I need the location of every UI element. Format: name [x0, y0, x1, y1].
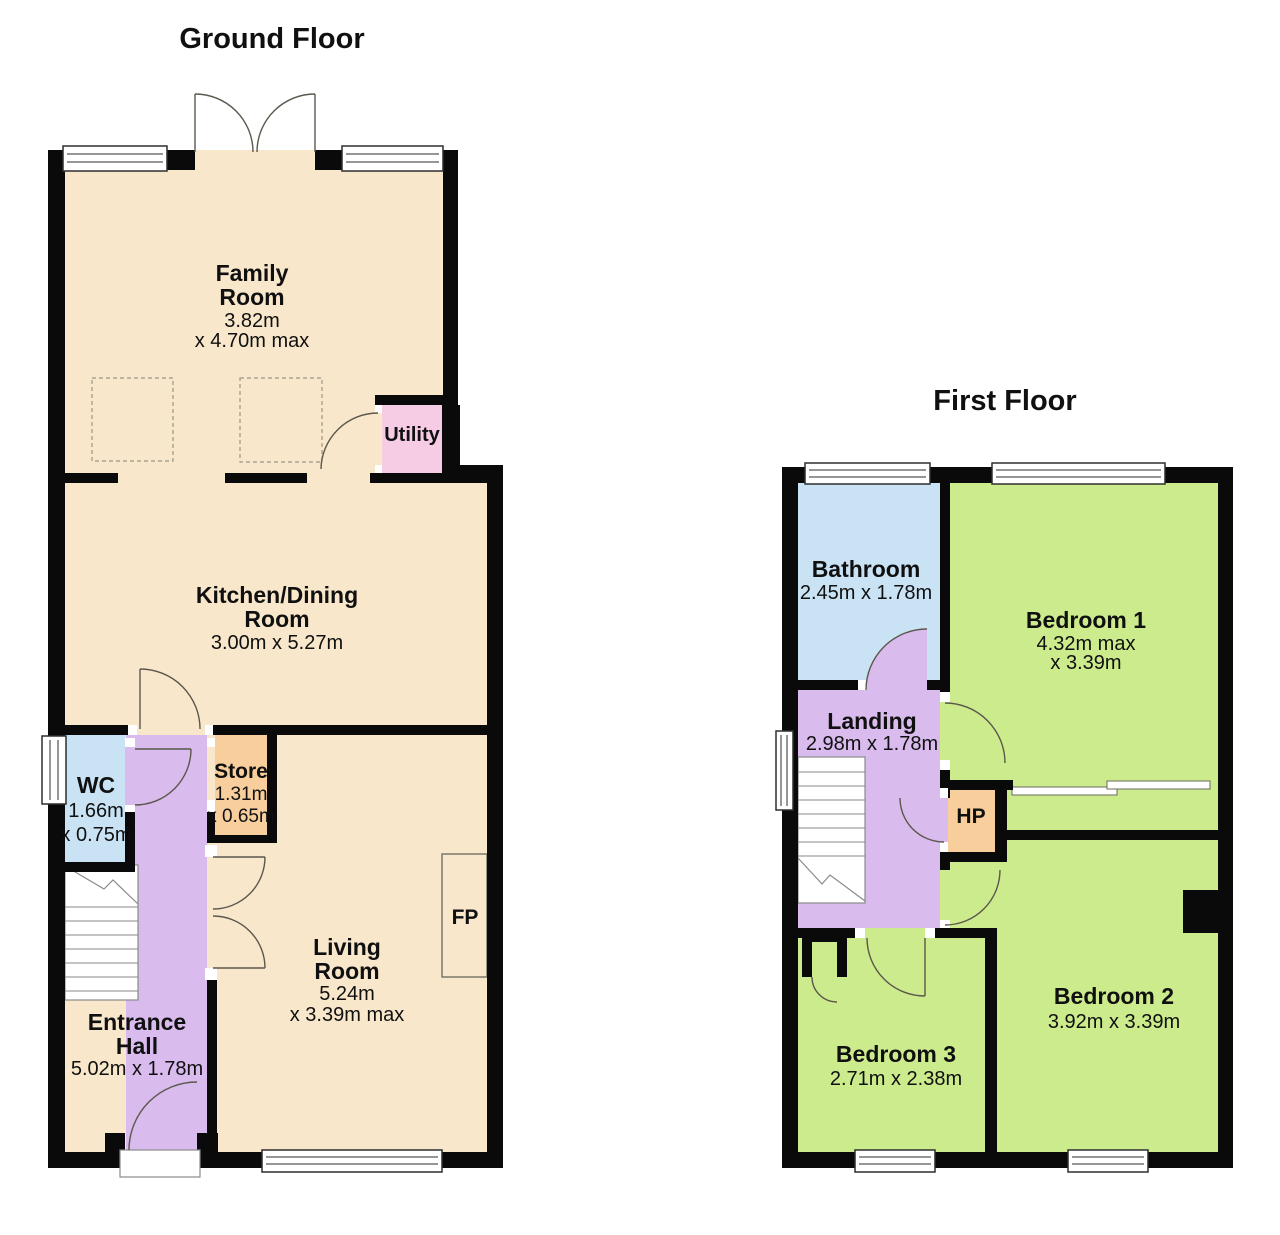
wall-segment: [798, 680, 858, 690]
kitchen-dims: 3.00m x 5.27m: [211, 632, 343, 654]
living-room-label: Room: [314, 958, 379, 984]
window: [776, 731, 793, 810]
landing-dims: 2.98m x 1.78m: [806, 733, 938, 755]
living-room-dims: 5.24m: [319, 983, 375, 1005]
door-jamb: [940, 788, 948, 798]
utility-label: Utility: [384, 424, 440, 446]
chimney-breast: [1183, 890, 1218, 933]
door-jamb: [940, 692, 950, 702]
staircase: [798, 757, 865, 903]
wardrobe-sliding-door: [1107, 781, 1210, 789]
bedroom3-dims: 2.71m x 2.38m: [830, 1068, 962, 1090]
window: [805, 463, 930, 484]
window: [1068, 1150, 1148, 1172]
bedroom1-label: Bedroom 1: [1026, 607, 1146, 633]
wall-segment: [65, 862, 135, 872]
store-dims: x 0.65m: [207, 806, 275, 827]
door-jamb: [125, 738, 135, 747]
bedroom2-label: Bedroom 2: [1054, 983, 1174, 1009]
wall-segment: [940, 852, 1007, 862]
door-jamb: [940, 760, 950, 770]
door-jamb: [125, 805, 135, 812]
bedroom2-dims: 3.92m x 3.39m: [1048, 1011, 1180, 1033]
door-jamb: [375, 405, 382, 413]
wall-segment: [940, 852, 950, 870]
wc-dims: x 0.75m: [60, 824, 131, 846]
wall-segment: [1218, 467, 1233, 1168]
wall-segment: [375, 395, 458, 405]
door-jamb: [375, 465, 382, 473]
store-label: Store: [214, 760, 268, 783]
bedroom3-label: Bedroom 3: [836, 1041, 956, 1067]
door-jamb: [207, 738, 215, 747]
bathroom-dims: 2.45m x 1.78m: [800, 582, 932, 604]
cupboard-wall: [837, 933, 847, 977]
window: [342, 146, 443, 171]
first-floor-title: First Floor: [933, 385, 1076, 417]
wc-label: WC: [77, 772, 115, 798]
family-room-dims: x 4.70m max: [195, 330, 309, 352]
window: [42, 736, 66, 804]
ground-floor-title: Ground Floor: [179, 23, 364, 55]
bedroom1-door-opening: [940, 702, 950, 760]
family-room-label: Room: [219, 284, 284, 310]
floorplan-image: Ground Floor Family Room 3.82m x 4.70m m…: [0, 0, 1280, 1235]
wall-segment: [487, 483, 503, 1168]
ground-floor-plan: Ground Floor Family Room 3.82m x 4.70m m…: [42, 23, 503, 1177]
cupboard-wall: [802, 933, 812, 977]
wall-segment: [782, 467, 798, 1168]
kitchen-label: Kitchen/Dining: [196, 582, 358, 608]
wall-segment: [443, 150, 458, 405]
wall-segment: [207, 835, 277, 843]
front-door-threshold: [120, 1150, 200, 1177]
wall-segment: [985, 938, 997, 1152]
door-jamb: [925, 928, 935, 938]
wall-segment: [370, 473, 442, 483]
wall-segment: [1007, 830, 1218, 840]
staircase: [65, 865, 138, 1000]
ground-floor-staircase: [65, 865, 138, 1000]
wall-segment: [48, 150, 65, 1168]
wardrobe-sliding-door: [1012, 787, 1117, 795]
wall-segment: [442, 405, 460, 465]
window: [855, 1150, 935, 1172]
bedroom1-dims: x 3.39m: [1050, 652, 1121, 674]
door-jamb: [128, 725, 137, 735]
wall-segment: [65, 473, 118, 483]
first-floor-staircase: [798, 757, 865, 903]
wall-segment: [213, 725, 503, 735]
wall-segment: [940, 483, 950, 692]
window: [262, 1150, 442, 1172]
fireplace-label: FP: [452, 906, 479, 929]
bedroom2-floor: [997, 938, 1007, 1152]
store-dims: 1.31m: [215, 784, 268, 805]
wall-segment: [995, 780, 1007, 862]
door-jamb: [855, 928, 865, 938]
family-room-dims: 3.82m: [224, 310, 280, 332]
door-jamb: [940, 842, 948, 852]
entrance-hall-dims: 5.02m x 1.78m: [71, 1058, 203, 1080]
living-room-dims: x 3.39m max: [290, 1004, 404, 1026]
bedroom2-floor: [950, 862, 1007, 938]
entrance-hall-label: Hall: [116, 1033, 158, 1059]
wc-dims: 1.66m: [68, 800, 124, 822]
landing-label: Landing: [827, 708, 916, 734]
door-jamb: [205, 845, 217, 857]
window: [63, 146, 167, 171]
kitchen-label: Room: [244, 606, 309, 632]
door-jamb: [205, 968, 217, 980]
family-room-label: Family: [216, 260, 289, 286]
door-jamb: [940, 920, 950, 928]
wall-segment: [442, 465, 503, 483]
living-room-label: Living: [313, 934, 381, 960]
floorplan-page: Ground Floor Family Room 3.82m x 4.70m m…: [0, 0, 1280, 1235]
wall-segment: [207, 980, 217, 1152]
bedroom3-door-opening: [865, 928, 925, 938]
french-door-arc: [195, 94, 253, 152]
bathroom-label: Bathroom: [812, 556, 921, 582]
bedroom2-door-opening: [940, 870, 950, 920]
hp-door-opening: [940, 798, 948, 842]
wc-door-opening: [125, 747, 135, 805]
first-floor-plan: First Floor Bathroom 2.45m x 1.78m Bedro…: [776, 385, 1233, 1172]
wall-segment: [785, 1152, 1233, 1168]
french-door-arc: [257, 94, 315, 152]
hp-label: HP: [956, 805, 985, 828]
entrance-hall-label: Entrance: [88, 1009, 186, 1035]
wall-segment: [927, 680, 950, 690]
bedroom1-recess-floor: [1007, 790, 1218, 830]
wall-segment: [65, 725, 128, 735]
wall-segment: [935, 928, 997, 938]
door-jamb: [205, 725, 213, 735]
window: [992, 463, 1165, 484]
wall-segment: [225, 473, 307, 483]
